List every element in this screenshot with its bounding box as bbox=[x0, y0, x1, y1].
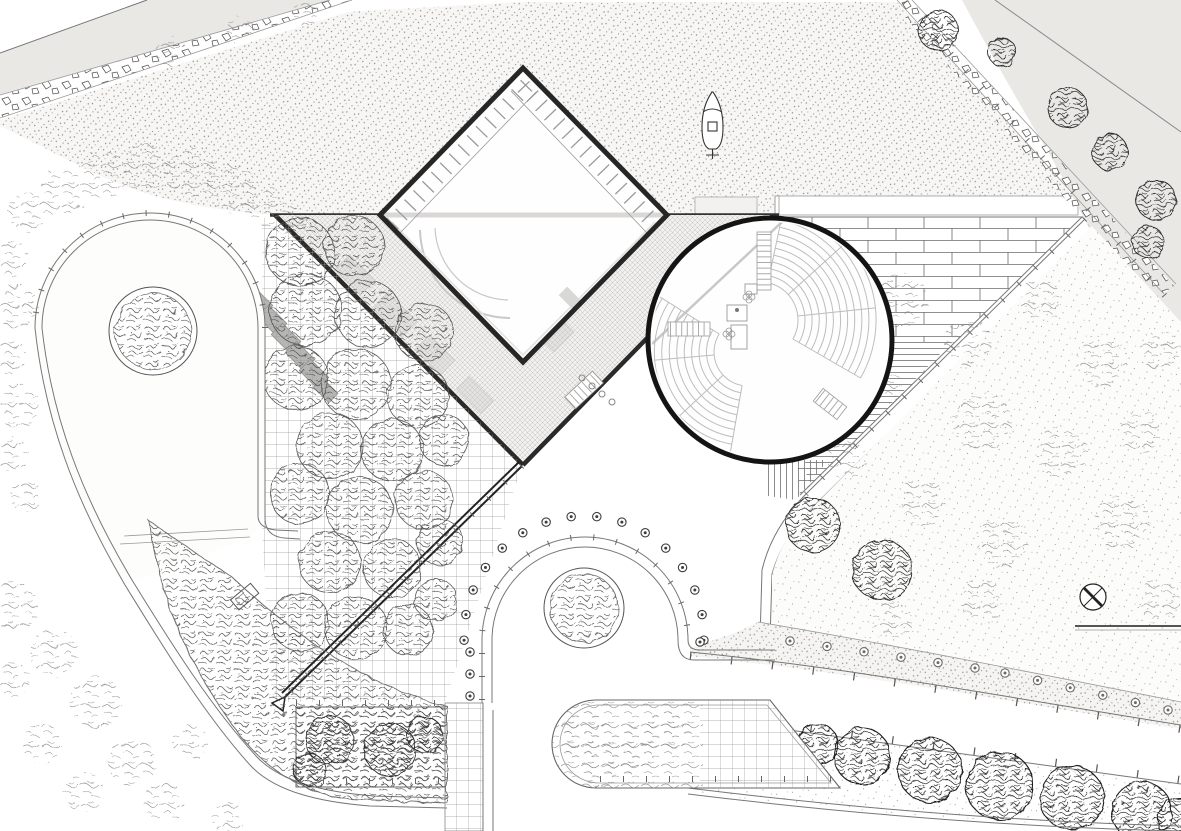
bollard-center bbox=[484, 566, 487, 569]
meadow-shrub bbox=[1136, 580, 1180, 624]
crossed-circle-marker-icon bbox=[1080, 584, 1106, 610]
street-tree bbox=[898, 738, 962, 802]
bollard-center bbox=[900, 656, 903, 659]
shore-shrub bbox=[226, 16, 254, 44]
meadow-shrub bbox=[1018, 280, 1062, 324]
stadium-shrub bbox=[646, 708, 690, 752]
street-tree bbox=[834, 728, 890, 784]
bollard-center bbox=[1036, 679, 1039, 682]
bollard-center bbox=[681, 566, 684, 569]
bollard-center bbox=[469, 673, 472, 676]
meadow-tree bbox=[786, 498, 840, 552]
shore-shrub bbox=[293, 2, 317, 26]
roadside-tree bbox=[1048, 88, 1088, 128]
meadow-shrub bbox=[952, 392, 1012, 452]
site-plan-drawing bbox=[0, 0, 1181, 831]
bollard-center bbox=[1167, 709, 1170, 712]
meadow-shrub bbox=[1076, 336, 1128, 388]
meadow-shrub bbox=[976, 516, 1028, 568]
shore-shrub bbox=[76, 150, 128, 202]
loop-planter-planting bbox=[115, 293, 191, 369]
roadside-tree bbox=[1092, 134, 1128, 170]
grove-tree-canopy bbox=[270, 274, 342, 346]
street-tree bbox=[966, 752, 1034, 820]
bollard-center bbox=[789, 640, 792, 643]
meadow-shrub bbox=[1140, 330, 1180, 370]
roadside-tree bbox=[988, 38, 1016, 66]
edge-shrub bbox=[10, 480, 42, 512]
bed-shrub bbox=[407, 717, 443, 753]
grove-tree-canopy bbox=[363, 539, 421, 597]
grove-tree-canopy bbox=[361, 419, 423, 481]
column-dot bbox=[735, 308, 739, 312]
bollard-center bbox=[472, 589, 475, 592]
bollard-center bbox=[463, 639, 466, 642]
roadside-tree bbox=[1132, 226, 1164, 258]
bollard-center bbox=[863, 650, 866, 653]
bollard-center bbox=[464, 613, 467, 616]
quay-platform bbox=[695, 197, 757, 214]
quay-strip bbox=[775, 196, 1078, 215]
bollard-center bbox=[937, 661, 940, 664]
grove-tree-canopy bbox=[325, 597, 387, 659]
bollard-center bbox=[826, 645, 829, 648]
meadow-shrub bbox=[898, 478, 946, 526]
bollard-center bbox=[469, 695, 472, 698]
shore-shrub bbox=[122, 144, 170, 192]
meadow-shrub bbox=[872, 602, 912, 642]
bollard-center bbox=[469, 651, 472, 654]
bollard-center bbox=[699, 641, 702, 644]
grove-tree-canopy bbox=[299, 531, 361, 593]
grove-tree-canopy bbox=[321, 349, 391, 419]
grove-tree-canopy bbox=[419, 415, 469, 465]
meadow-shrub bbox=[1094, 494, 1150, 550]
path-shrub bbox=[70, 676, 122, 728]
roadside-tree bbox=[918, 10, 958, 50]
bed-shrub bbox=[294, 754, 326, 786]
grove-tree-canopy bbox=[270, 464, 330, 524]
bollard-center bbox=[570, 515, 573, 518]
grove-tree-canopy bbox=[335, 281, 401, 347]
bollard-center bbox=[664, 547, 667, 550]
path-shrub bbox=[30, 628, 78, 676]
bollard-center bbox=[1004, 672, 1007, 675]
grove-tree-canopy bbox=[395, 303, 453, 361]
arch-planter-planting bbox=[550, 574, 618, 642]
bollard-center bbox=[1069, 686, 1072, 689]
stair-north bbox=[757, 232, 771, 290]
bollard-center bbox=[521, 531, 524, 534]
bollard-center bbox=[644, 531, 647, 534]
meadow-shrub bbox=[1118, 410, 1162, 454]
stadium-shrub bbox=[582, 752, 618, 788]
meadow-tree bbox=[852, 540, 912, 600]
bollard-center bbox=[701, 613, 704, 616]
bollard-center bbox=[1134, 701, 1137, 704]
grid-walk-strip bbox=[445, 703, 483, 831]
bollard-center bbox=[501, 547, 504, 550]
meadow-shrub bbox=[944, 318, 992, 366]
shore-shrub bbox=[274, 206, 306, 238]
path-shrub bbox=[144, 782, 184, 822]
bollard-center bbox=[974, 667, 977, 670]
path-shrub bbox=[64, 772, 104, 812]
bollard-center bbox=[693, 589, 696, 592]
grove-tree-canopy bbox=[264, 346, 328, 410]
path-shrub bbox=[108, 738, 156, 786]
meadow-shrub bbox=[960, 580, 1004, 624]
stair-west bbox=[668, 322, 710, 336]
bollard-center bbox=[620, 521, 623, 524]
roadside-tree bbox=[1136, 180, 1176, 220]
bollard-center bbox=[545, 521, 548, 524]
bollard-center bbox=[595, 515, 598, 518]
grove-tree-canopy bbox=[415, 579, 457, 621]
site-plan-svg bbox=[0, 0, 1181, 831]
path-shrub bbox=[172, 724, 208, 760]
shore-shrub bbox=[154, 36, 186, 68]
meadow-shrub bbox=[1036, 426, 1088, 478]
grove-tree-canopy bbox=[324, 216, 384, 276]
grove-tree-canopy bbox=[417, 519, 463, 565]
bollard-center bbox=[1101, 694, 1104, 697]
path-shrub bbox=[22, 724, 62, 764]
